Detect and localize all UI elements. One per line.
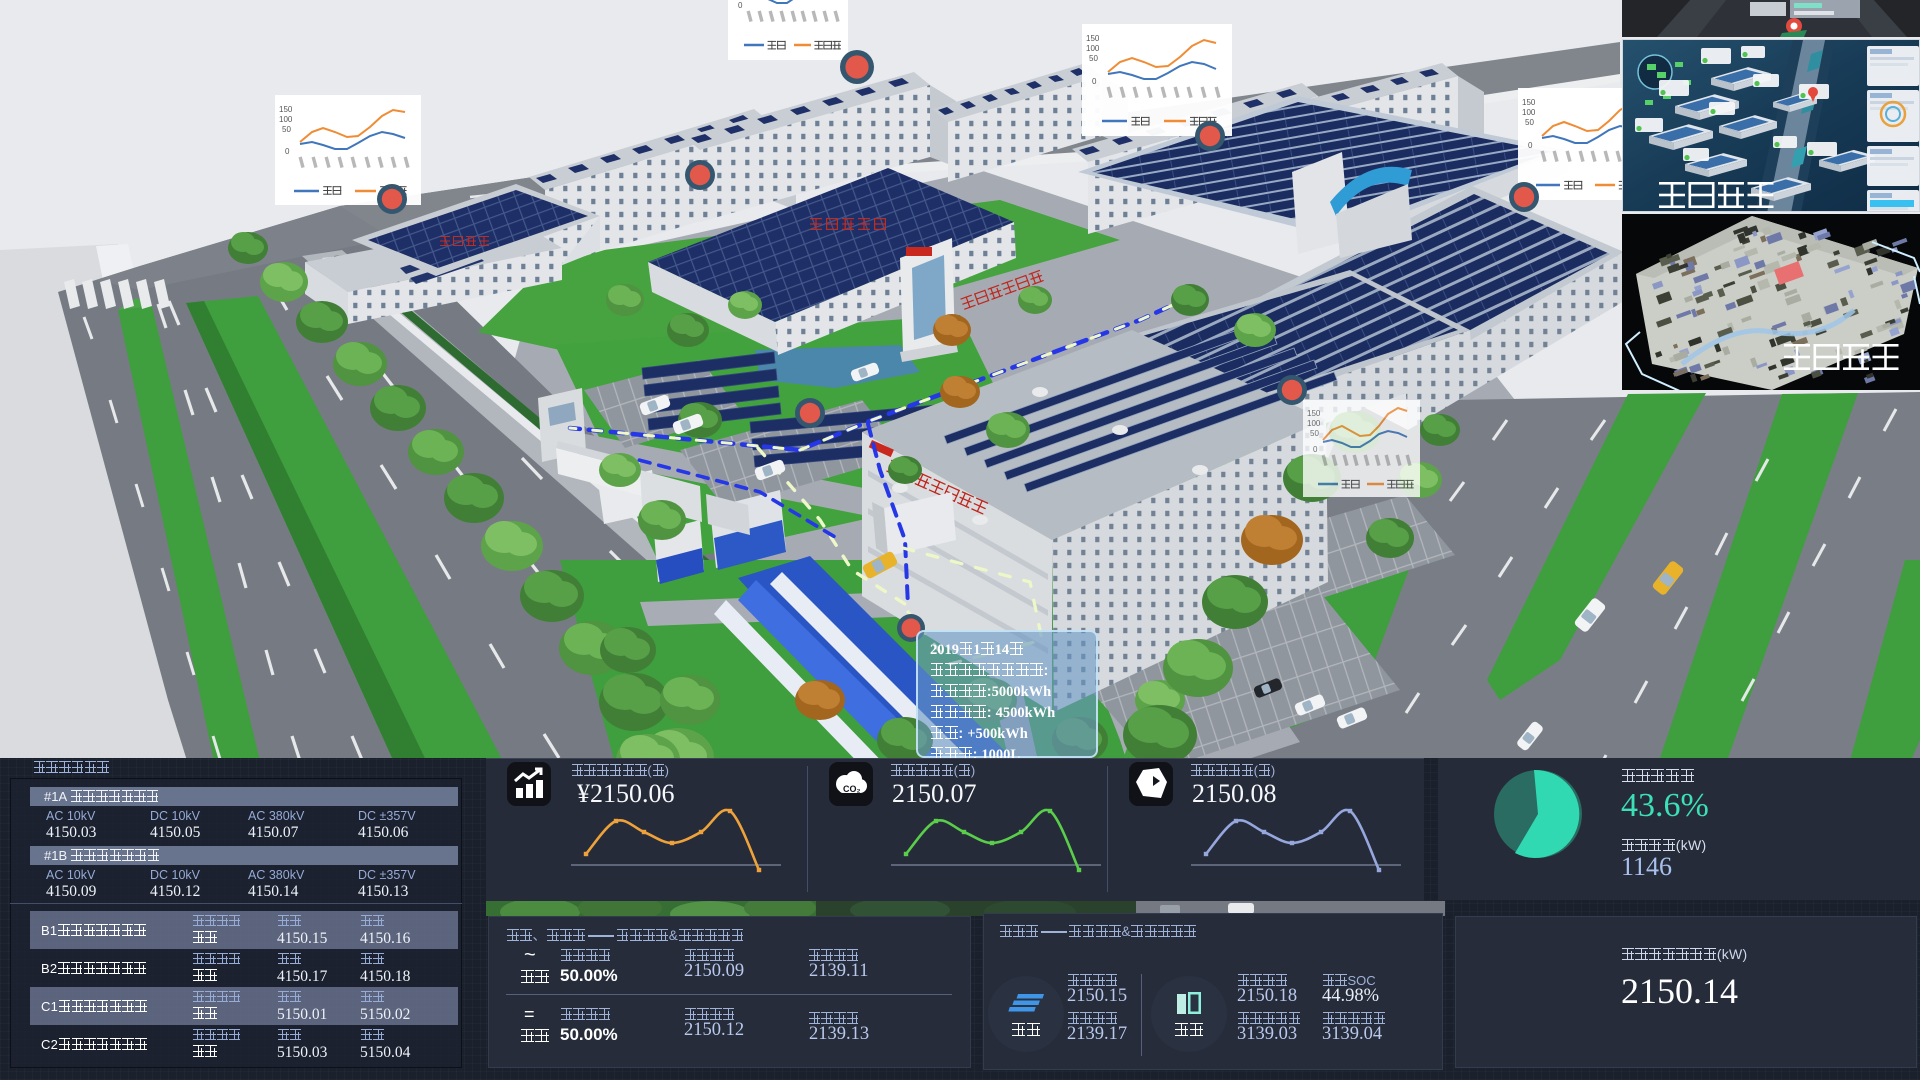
svg-text:0: 0 xyxy=(738,1,743,10)
svg-text:100: 100 xyxy=(1522,108,1536,117)
svg-text:50: 50 xyxy=(1310,429,1319,438)
svg-text:150: 150 xyxy=(1086,34,1100,43)
svg-text:50: 50 xyxy=(282,125,291,134)
svg-text:150: 150 xyxy=(1522,98,1536,107)
svg-text:100: 100 xyxy=(279,115,293,124)
svg-text:50: 50 xyxy=(1089,54,1098,63)
svg-text:0: 0 xyxy=(1528,141,1533,150)
svg-text:100: 100 xyxy=(1307,419,1321,428)
svg-text:0: 0 xyxy=(285,147,290,156)
svg-text:0: 0 xyxy=(1092,77,1097,86)
svg-text:CO₂: CO₂ xyxy=(843,784,861,794)
svg-text:50: 50 xyxy=(1525,118,1534,127)
svg-text:0: 0 xyxy=(1313,445,1318,454)
svg-text:150: 150 xyxy=(279,105,293,114)
svg-text:100: 100 xyxy=(1086,44,1100,53)
svg-text:150: 150 xyxy=(1307,409,1321,418)
